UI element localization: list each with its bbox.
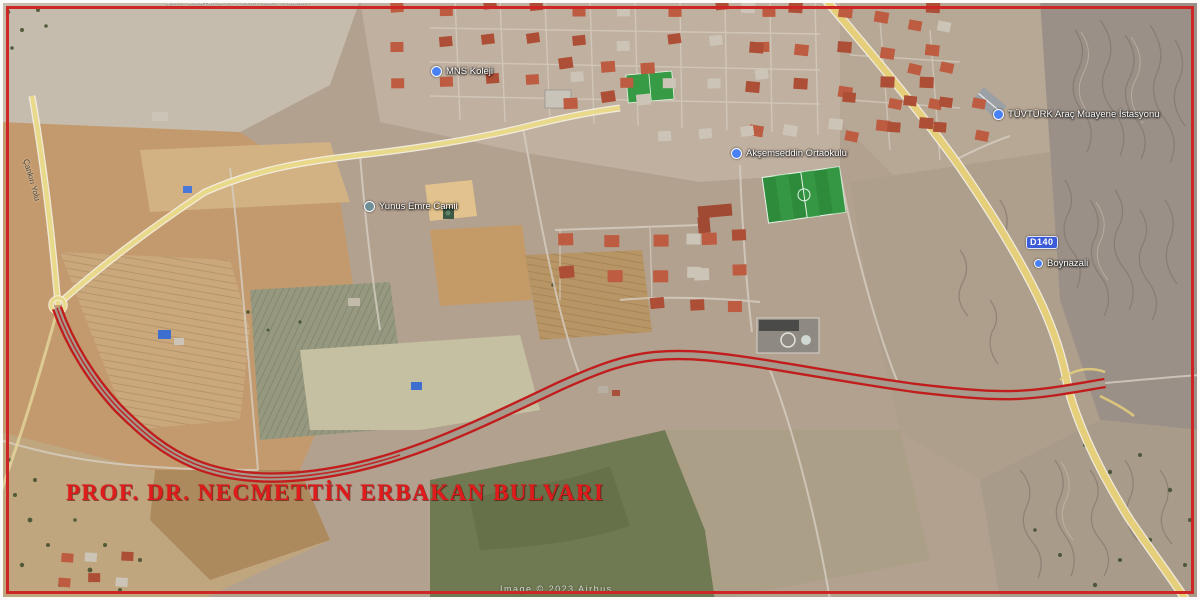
clipped-top-label: Şehir Stadyumu ve Piknik Alanı Tesisleri (166, 0, 308, 6)
bus-stop-poi: Boynazali (1034, 258, 1088, 269)
road-shield-d140: D140 (1026, 236, 1058, 249)
middle-school-label: Akşemseddin Ortaokulu (746, 148, 847, 159)
mosque-icon (364, 201, 375, 212)
bus-stop-icon (1034, 259, 1043, 268)
route-title: PROF. DR. NECMETTİN ERBAKAN BULVARI (66, 480, 605, 506)
satellite-imagery (0, 0, 1200, 600)
inspection-station-poi: TÜVTÜRK Araç Muayene İstasyonu (993, 109, 1160, 120)
middle-school-poi: Akşemseddin Ortaokulu (731, 148, 847, 159)
imagery-attribution: Image © 2023 Airbus (500, 584, 613, 594)
school-icon (431, 66, 442, 77)
annotated-satellite-map: Şehir Stadyumu ve Piknik Alanı Tesisleri… (0, 0, 1200, 600)
event-hall-complex (757, 318, 819, 353)
inspection-station-label: TÜVTÜRK Araç Muayene İstasyonu (1008, 109, 1160, 120)
bus-stop-label: Boynazali (1047, 258, 1088, 269)
school-poi: MNS Koleji (431, 66, 493, 77)
middle-school-icon (731, 148, 742, 159)
mosque-poi: Yunus Emre Camii (364, 201, 458, 212)
school-label: MNS Koleji (446, 66, 493, 77)
inspection-station-icon (993, 109, 1004, 120)
mosque-label: Yunus Emre Camii (379, 201, 458, 212)
